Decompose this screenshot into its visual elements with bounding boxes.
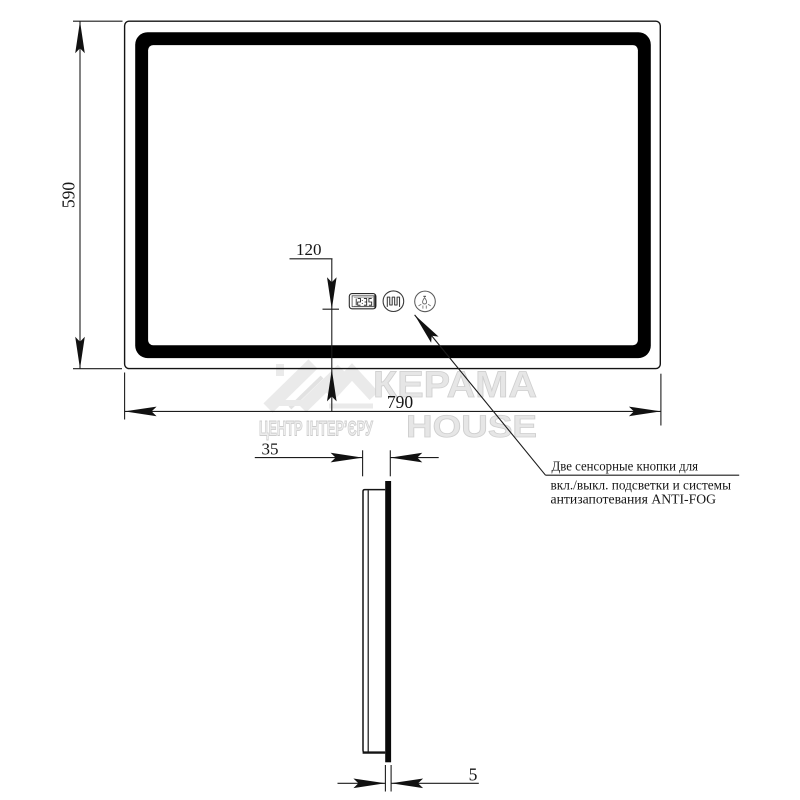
svg-text:антизапотевания ANTI-FOG: антизапотевания ANTI-FOG (551, 493, 717, 508)
svg-text:790: 790 (387, 392, 414, 412)
svg-text:вкл./выкл. подсветки и системы: вкл./выкл. подсветки и системы (551, 479, 732, 494)
svg-text:ЦЕНТР ІНТЕР’ЄРУ: ЦЕНТР ІНТЕР’ЄРУ (259, 418, 374, 441)
svg-text:590: 590 (59, 182, 79, 209)
svg-text:Две сенсорные кнопки для: Две сенсорные кнопки для (552, 460, 699, 475)
svg-text:HOUSE: HOUSE (406, 408, 537, 444)
svg-text:5: 5 (469, 764, 478, 784)
svg-text:120: 120 (296, 240, 322, 259)
svg-text:35: 35 (262, 439, 279, 458)
